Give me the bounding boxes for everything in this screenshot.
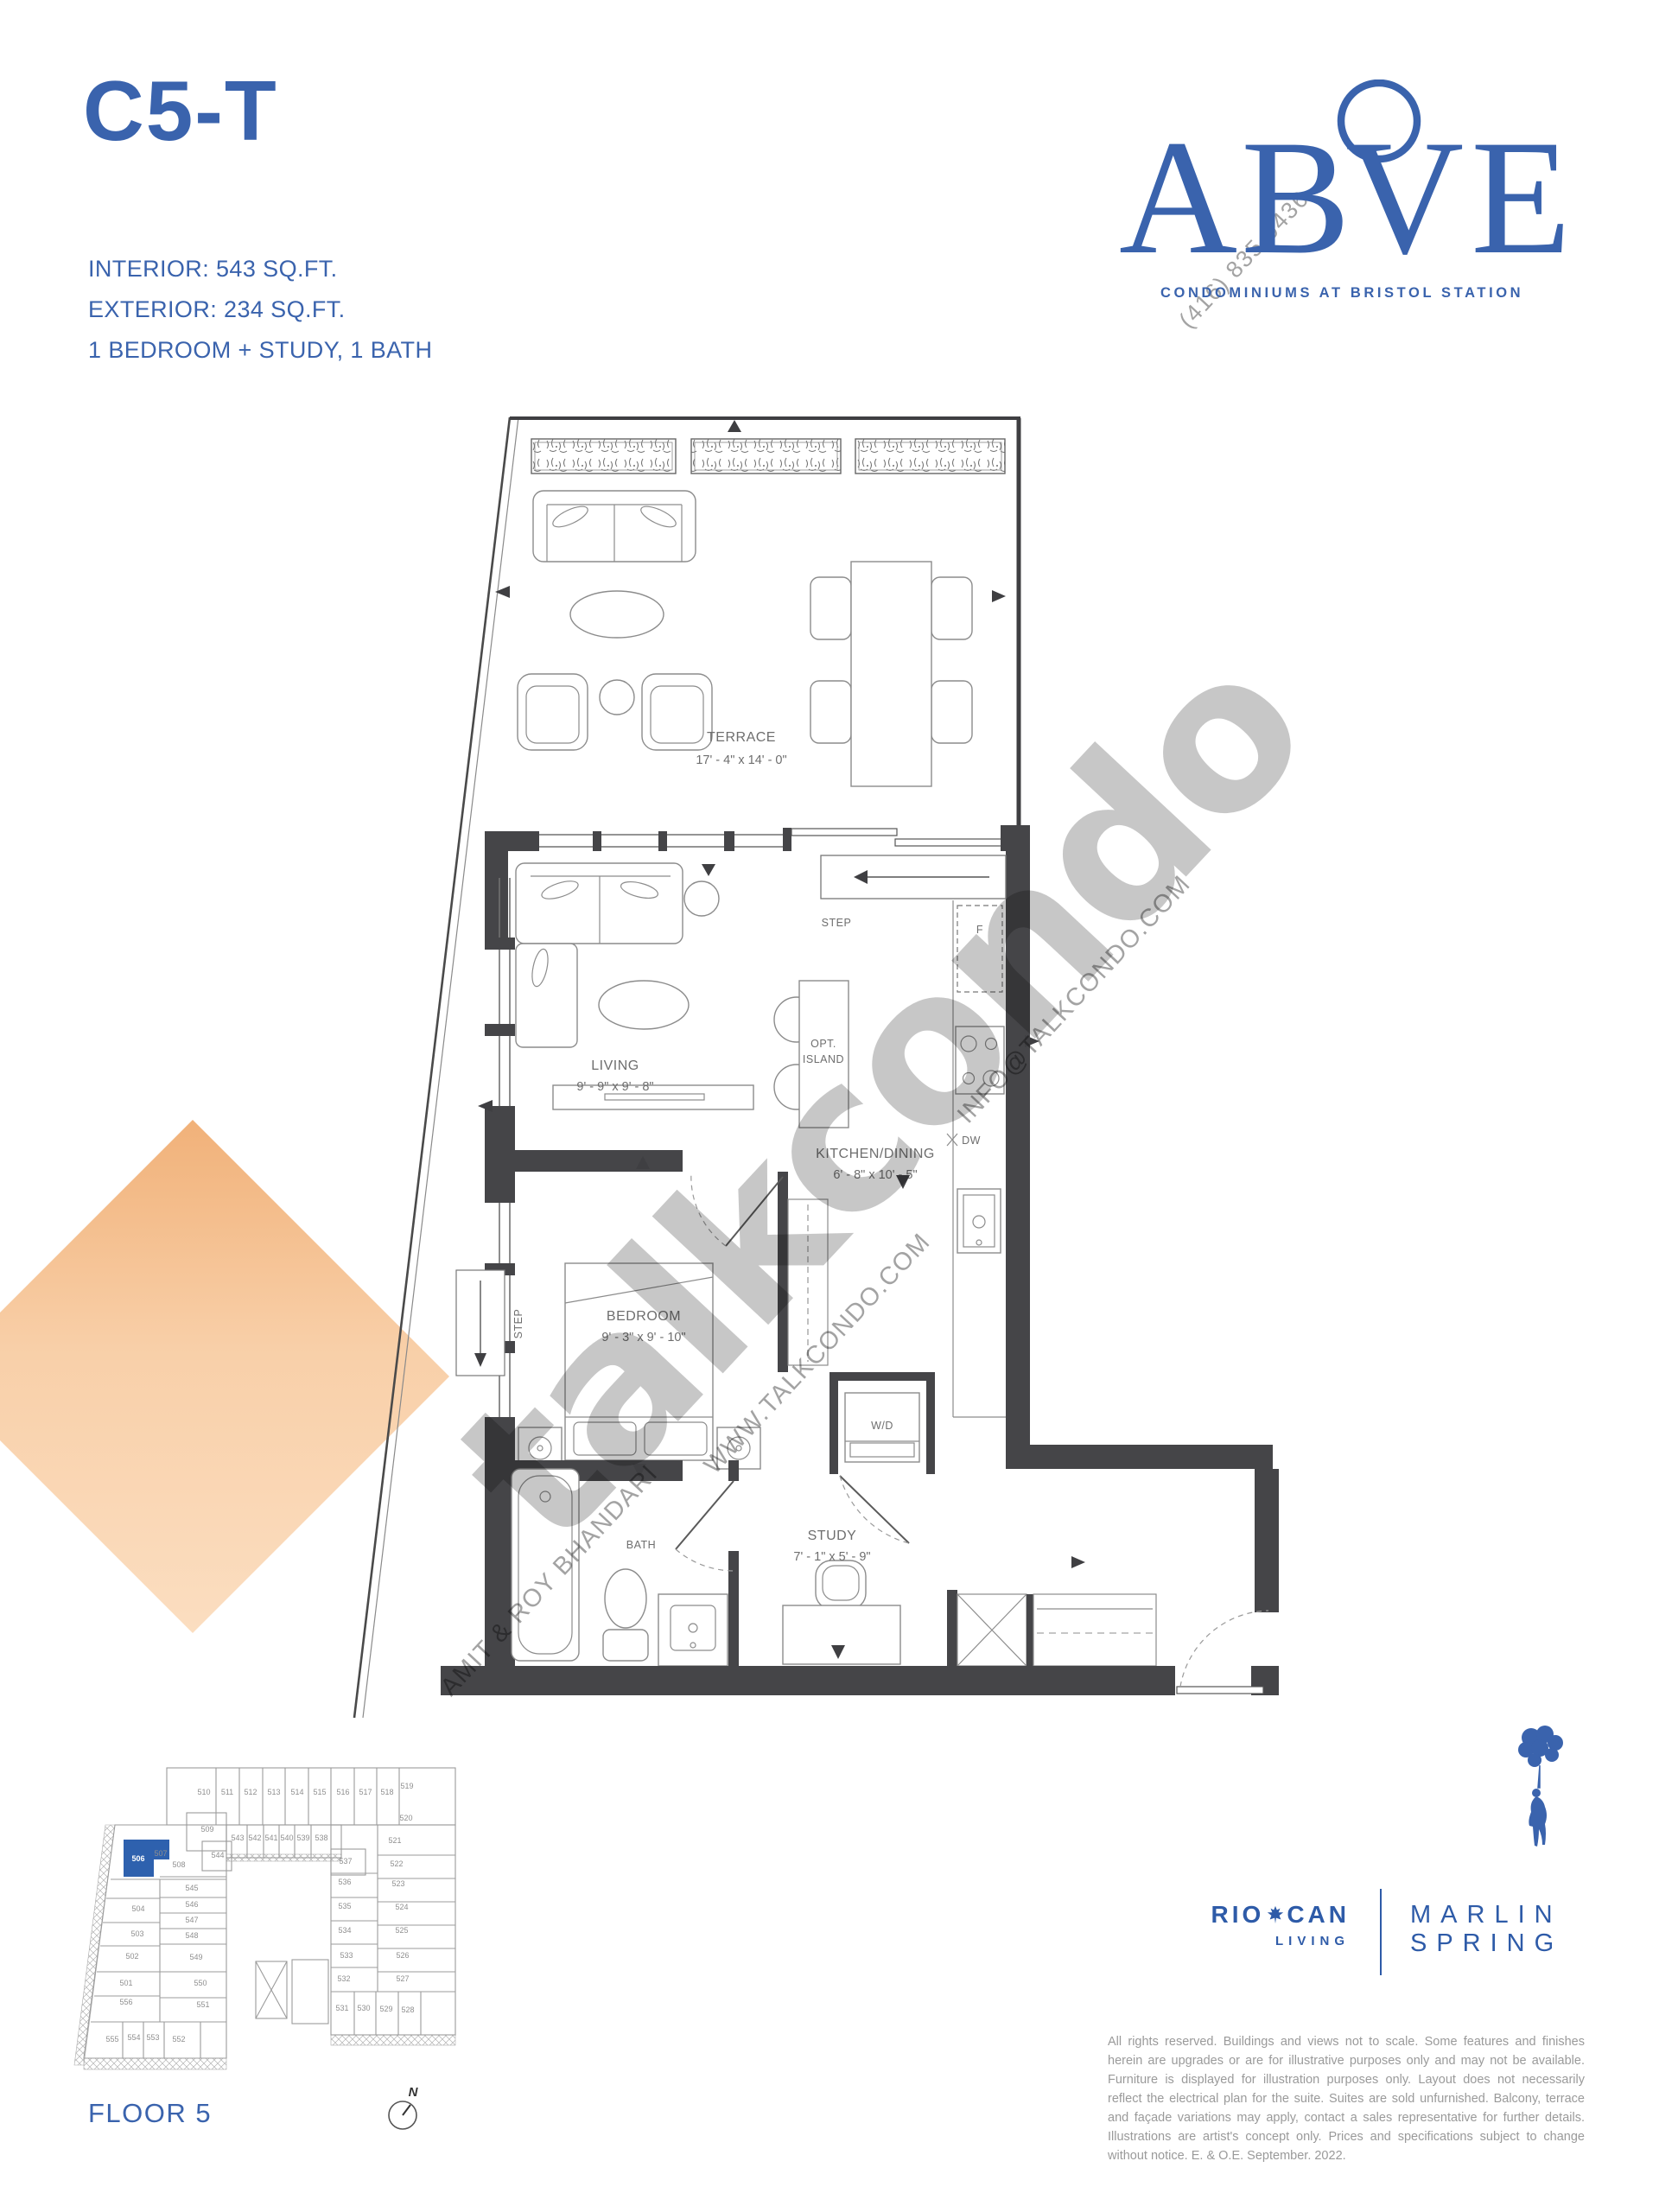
toilet <box>603 1569 648 1661</box>
bedroom-door <box>691 1172 783 1246</box>
keyplan-unit-503: 503 <box>130 1929 143 1938</box>
keyplan-unit-541: 541 <box>264 1834 277 1842</box>
keyplan-unit-537: 537 <box>339 1857 352 1866</box>
logo-divider <box>1380 1889 1382 1975</box>
balloon-person-logo <box>1505 1724 1574 1862</box>
keyplan-unit-513: 513 <box>267 1788 280 1796</box>
entry-linen-closet <box>957 1594 1027 1666</box>
bath-door <box>676 1481 734 1571</box>
keyplan-unit-528: 528 <box>401 2005 414 2014</box>
bedroom-step <box>456 1270 505 1376</box>
washer-dryer-label: W/D <box>871 1420 893 1432</box>
keyplan-unit-549: 549 <box>189 1953 202 1961</box>
keyplan-unit-532: 532 <box>337 1974 350 1983</box>
keyplan-outline <box>84 1768 455 2058</box>
riocan-can: CAN <box>1287 1901 1350 1929</box>
above-logo-ve: VE <box>1345 107 1573 265</box>
keyplan-unit-533: 533 <box>340 1951 353 1960</box>
keyplan-unit-512: 512 <box>244 1788 257 1796</box>
keyplan-unit-548: 548 <box>185 1931 198 1940</box>
terrace-dining-set <box>810 562 972 786</box>
keyplan-unit-531: 531 <box>335 2004 348 2012</box>
marlin-spring-logo: MARLIN SPRING <box>1410 1901 1563 1958</box>
riocan-living: LIVING <box>1166 1934 1350 1948</box>
kitchen-step <box>821 855 1006 899</box>
bath-label: BATH <box>626 1539 656 1551</box>
keyplan-unit-506: 506 <box>131 1854 144 1863</box>
kitchen-counter <box>947 900 1006 1417</box>
bathtub <box>512 1469 579 1661</box>
keyplan-unit-501: 501 <box>119 1979 132 1987</box>
closet-divider <box>1027 1594 1033 1666</box>
riocan-logo: RIO CAN LIVING <box>1166 1901 1350 1948</box>
terrace-sofa <box>533 491 696 562</box>
living-label: LIVING <box>591 1058 639 1073</box>
keyplan-unit-534: 534 <box>338 1926 351 1935</box>
keyplan-unit-538: 538 <box>315 1834 327 1842</box>
closet-wall <box>947 1590 957 1666</box>
keyplan: 5105115125135145155165175185195205095435… <box>60 1754 475 2134</box>
keyplan-unit-552: 552 <box>172 2035 185 2044</box>
keyplan-unit-547: 547 <box>185 1916 198 1924</box>
entry-coat-closet <box>1033 1594 1156 1666</box>
terrace-label: TERRACE <box>707 730 776 745</box>
keyplan-unit-553: 553 <box>146 2033 159 2042</box>
keyplan-unit-536: 536 <box>338 1878 351 1886</box>
island-label-1: OPT. <box>810 1038 836 1050</box>
above-logo: AB VE <box>1119 79 1573 265</box>
kitchen-step-label: STEP <box>822 917 852 929</box>
bath-door-jamb <box>728 1460 739 1481</box>
marlin-line1: MARLIN <box>1410 1901 1563 1929</box>
keyplan-unit-509: 509 <box>200 1825 213 1834</box>
bed <box>565 1263 713 1460</box>
compass-icon: N <box>389 2085 419 2129</box>
bedroom-step-label: STEP <box>512 1309 524 1339</box>
bedroom-closet <box>788 1199 828 1365</box>
floorplan-page: C5-T INTERIOR: 543 SQ.FT. EXTERIOR: 234 … <box>0 0 1659 2212</box>
keyplan-unit-508: 508 <box>172 1860 185 1869</box>
keyplan-unit-545: 545 <box>185 1884 198 1892</box>
terrace-dims: 17' - 4" x 14' - 0" <box>696 753 786 767</box>
keyplan-unit-539: 539 <box>296 1834 309 1842</box>
keyplan-highlight-506 <box>124 1840 169 1877</box>
keyplan-unit-535: 535 <box>338 1902 351 1910</box>
bath-vanity <box>658 1594 728 1666</box>
keyplan-unit-543: 543 <box>231 1834 244 1842</box>
keyplan-unit-514: 514 <box>290 1788 303 1796</box>
study-dims: 7' - 1" x 5' - 9" <box>793 1550 870 1564</box>
keyplan-unit-555: 555 <box>105 2035 118 2044</box>
keyplan-unit-546: 546 <box>185 1900 198 1909</box>
keyplan-unit-517: 517 <box>359 1788 372 1796</box>
keyplan-unit-521: 521 <box>388 1836 401 1845</box>
living-coffee-table <box>599 981 689 1029</box>
maple-leaf-icon <box>1266 1905 1285 1924</box>
keyplan-unit-519: 519 <box>400 1782 413 1790</box>
interior-area: INTERIOR: 543 SQ.FT. <box>88 249 432 289</box>
keyplan-unit-525: 525 <box>395 1926 408 1935</box>
keyplan-unit-504: 504 <box>131 1904 144 1913</box>
keyplan-unit-529: 529 <box>379 2005 392 2013</box>
keyplan-unit-523: 523 <box>391 1879 404 1888</box>
marlin-line2: SPRING <box>1410 1929 1563 1958</box>
keyplan-unit-556: 556 <box>119 1998 132 2006</box>
keyplan-unit-522: 522 <box>390 1859 403 1868</box>
bath-left-wall <box>485 1417 515 1666</box>
unit-code: C5-T <box>83 62 278 160</box>
terrace-planters <box>531 439 1005 474</box>
exterior-area: EXTERIOR: 234 SQ.FT. <box>88 289 432 330</box>
laundry-closet <box>829 1372 935 1543</box>
bedroom-label: BEDROOM <box>607 1309 681 1324</box>
bath-study-wall <box>728 1551 739 1666</box>
disclaimer-text: All rights reserved. Buildings and views… <box>1108 2032 1585 2165</box>
above-logo-ab: AB <box>1119 107 1354 265</box>
floor-label: FLOOR 5 <box>88 2098 212 2129</box>
keyplan-unit-524: 524 <box>395 1903 408 1911</box>
keyplan-unit-510: 510 <box>197 1788 210 1796</box>
terrace-lounge-chairs <box>518 674 712 750</box>
keyplan-unit-540: 540 <box>280 1834 293 1842</box>
keyplan-unit-507: 507 <box>154 1849 167 1858</box>
keyplan-unit-544: 544 <box>211 1851 224 1859</box>
study-label: STUDY <box>808 1529 857 1543</box>
unit-config: 1 BEDROOM + STUDY, 1 BATH <box>88 330 432 371</box>
kitchen-label: KITCHEN/DINING <box>816 1147 935 1161</box>
keyplan-unit-527: 527 <box>396 1974 409 1983</box>
riocan-rio: RIO <box>1211 1901 1265 1929</box>
keyplan-unit-554: 554 <box>127 2033 140 2042</box>
keyplan-unit-511: 511 <box>221 1788 233 1796</box>
keyplan-unit-526: 526 <box>396 1951 409 1960</box>
living-dims: 9' - 9" x 9' - 8" <box>576 1080 653 1094</box>
keyplan-unit-520: 520 <box>399 1814 412 1822</box>
keyplan-unit-542: 542 <box>248 1834 261 1842</box>
keyplan-units: 5105115125135145155165175185195205095435… <box>105 1782 414 2044</box>
bedroom-side-wall <box>778 1172 788 1372</box>
fridge-label: F <box>976 924 983 936</box>
keyplan-unit-550: 550 <box>194 1979 207 1987</box>
keyplan-unit-530: 530 <box>357 2004 370 2012</box>
keyplan-unit-518: 518 <box>380 1788 393 1796</box>
floorplan-drawing: TERRACE 17' - 4" x 14' - 0" <box>328 380 1313 1745</box>
unit-stats: INTERIOR: 543 SQ.FT. EXTERIOR: 234 SQ.FT… <box>88 249 432 371</box>
keyplan-unit-515: 515 <box>313 1788 326 1796</box>
terrace-coffee-table <box>570 591 664 638</box>
keyplan-unit-516: 516 <box>336 1788 349 1796</box>
bedroom-dims: 9' - 3" x 9' - 10" <box>601 1331 685 1344</box>
keyplan-unit-502: 502 <box>125 1952 138 1961</box>
dishwasher-label: DW <box>962 1135 981 1147</box>
kitchen-right-wall <box>1006 831 1030 1469</box>
island-label-2: ISLAND <box>803 1053 844 1065</box>
compass-n: N <box>409 2085 419 2100</box>
keyplan-unit-551: 551 <box>196 2000 209 2009</box>
above-tagline: CONDOMINIUMS AT BRISTOL STATION <box>1160 285 1523 302</box>
